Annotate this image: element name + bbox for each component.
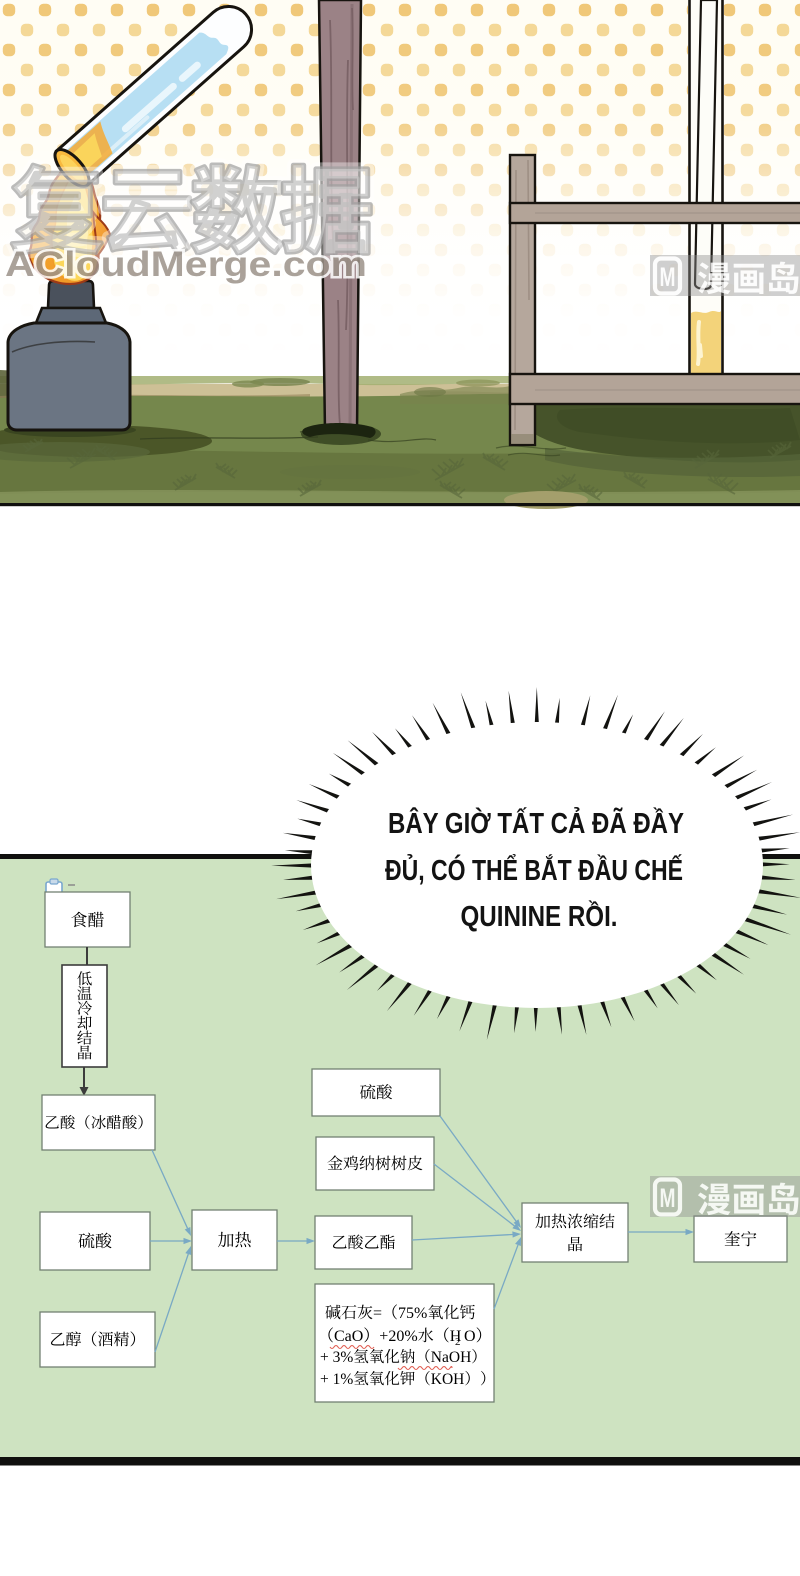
svg-text:O: O [464, 1328, 476, 1345]
svg-text:QUININE RỒI.: QUININE RỒI. [461, 899, 618, 933]
svg-text:+ 1%: + 1% [320, 1371, 353, 1388]
svg-text:ĐỦ, CÓ THỂ BẮT ĐẦU CHẾ: ĐỦ, CÓ THỂ BẮT ĐẦU CHẾ [385, 853, 683, 887]
svg-text:2: 2 [455, 1336, 461, 1348]
svg-text:ACloudMerge.com: ACloudMerge.com [5, 245, 367, 284]
svg-text:M: M [660, 262, 676, 292]
svg-text:BÂY GIỜ TẤT CẢ ĐÃ ĐẦY: BÂY GIỜ TẤT CẢ ĐÃ ĐẦY [388, 806, 684, 840]
svg-text:CaO: CaO [334, 1328, 363, 1345]
svg-text:KOH: KOH [431, 1371, 465, 1388]
svg-text:M: M [660, 1183, 676, 1213]
svg-text:+20%: +20% [379, 1328, 417, 1345]
svg-text:NaOH: NaOH [431, 1349, 471, 1366]
svg-text:+ 3%: + 3% [320, 1349, 353, 1366]
svg-text:75%: 75% [398, 1305, 427, 1322]
svg-text:=: = [373, 1305, 382, 1322]
